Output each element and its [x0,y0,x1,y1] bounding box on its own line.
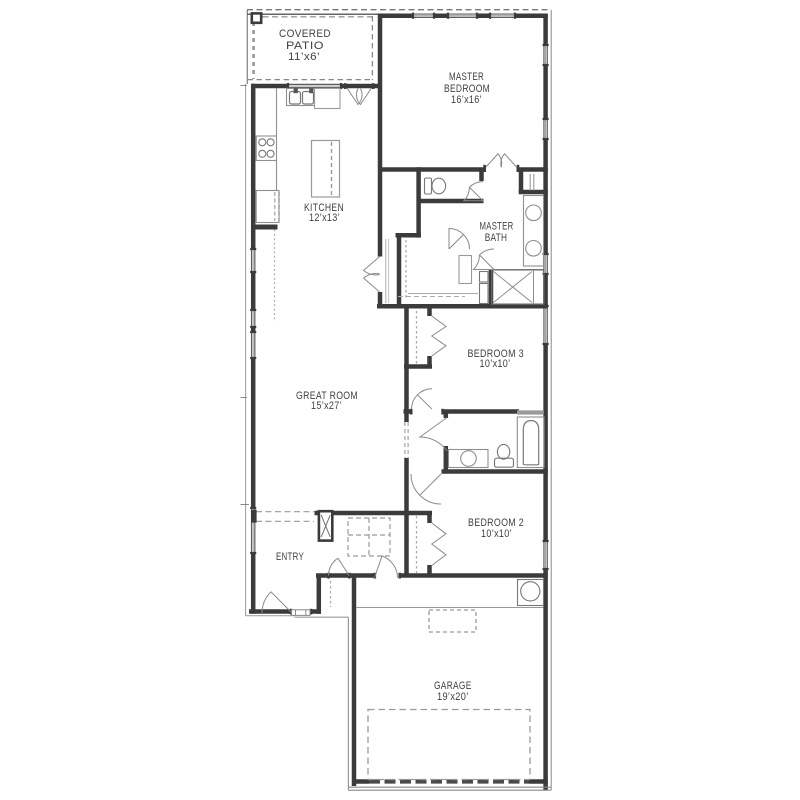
svg-text:PATIO: PATIO [286,40,324,52]
svg-text:12’x13’: 12’x13’ [309,212,340,224]
svg-text:15’x27’: 15’x27’ [311,400,342,412]
svg-text:BEDROOM: BEDROOM [444,83,490,95]
svg-text:GARAGE: GARAGE [434,680,472,692]
svg-text:BATH: BATH [485,232,508,244]
svg-text:11’x6’: 11’x6’ [288,51,320,63]
svg-text:COVERED: COVERED [279,28,331,40]
svg-text:10’x10’: 10’x10’ [480,358,511,370]
svg-text:MASTER: MASTER [449,71,484,83]
svg-text:10’x10’: 10’x10’ [481,528,512,540]
svg-text:ENTRY: ENTRY [276,551,304,563]
svg-text:19’x20’: 19’x20’ [437,691,469,703]
svg-text:MASTER: MASTER [480,221,514,233]
svg-text:16’x16’: 16’x16’ [451,94,482,106]
